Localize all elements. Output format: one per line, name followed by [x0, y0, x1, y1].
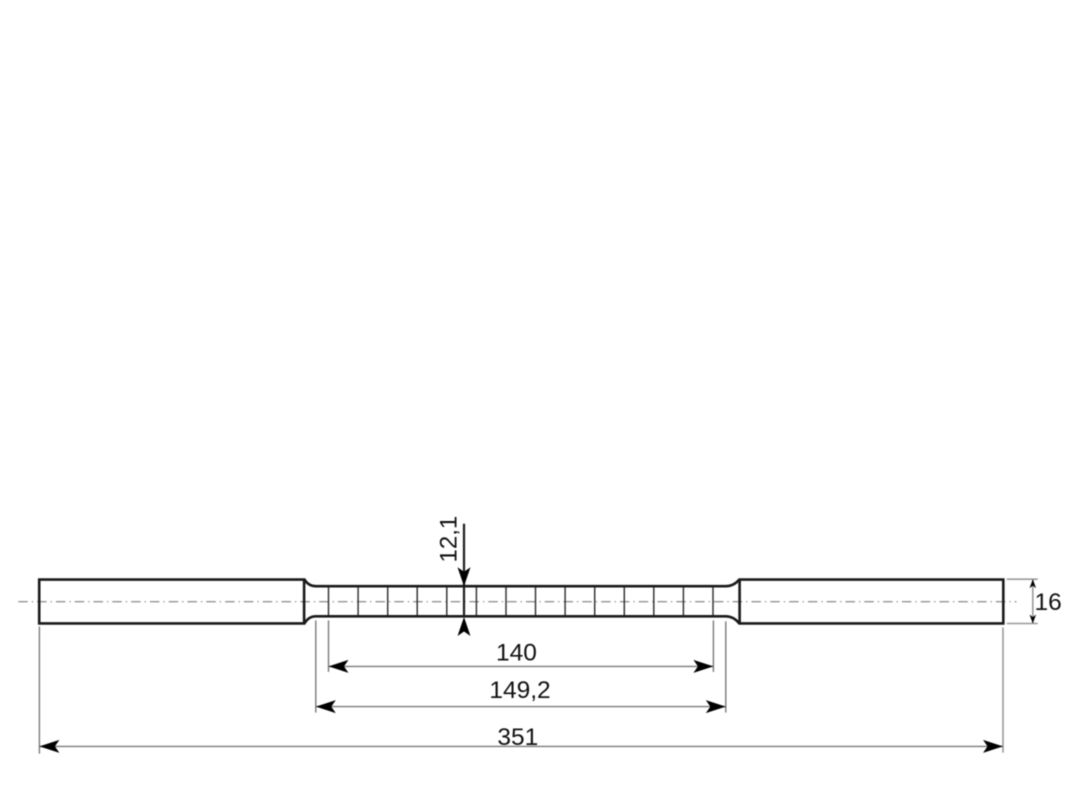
svg-text:140: 140 — [496, 639, 537, 666]
svg-text:351: 351 — [497, 724, 538, 751]
svg-text:12,1: 12,1 — [436, 516, 463, 563]
svg-text:16: 16 — [1035, 589, 1062, 616]
svg-text:149,2: 149,2 — [489, 677, 550, 704]
